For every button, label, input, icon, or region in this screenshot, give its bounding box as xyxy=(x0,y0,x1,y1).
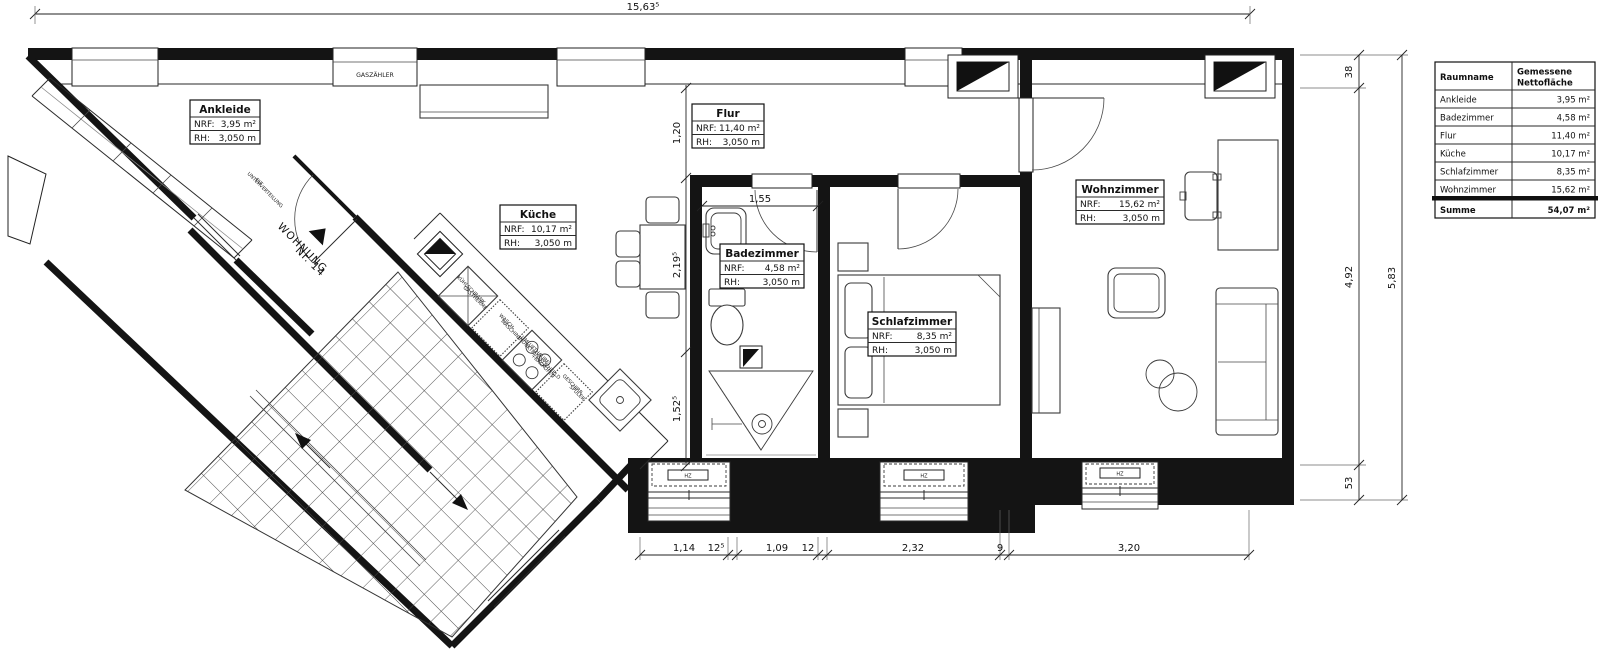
dim-155: 1,55 xyxy=(749,194,771,205)
radiator-label: HZ xyxy=(920,474,928,480)
shaft-icon-bath xyxy=(740,346,762,368)
dim-1525: 1,52⁵ xyxy=(672,396,683,422)
room-label-ankleide: Ankleide NRF:3,95 m² RH:3,050 m xyxy=(190,100,260,144)
dim-53: 53 xyxy=(1344,477,1355,490)
dim-114: 1,14 xyxy=(673,543,695,554)
svg-text:15,62 m²: 15,62 m² xyxy=(1551,186,1590,196)
table-row: Küche xyxy=(1440,150,1466,160)
table-row: Schlafzimmer xyxy=(1440,168,1499,178)
dim-38: 38 xyxy=(1344,66,1355,79)
svg-text:Flur: Flur xyxy=(716,108,740,120)
floorplan-drawing: GASZÄHLER xyxy=(0,0,1600,651)
dim-583: 5,83 xyxy=(1387,267,1398,289)
svg-text:8,35 m²: 8,35 m² xyxy=(1557,168,1590,178)
window-bay-2: HZ xyxy=(880,462,968,521)
svg-text:NRF:: NRF: xyxy=(724,264,745,274)
svg-text:RH:: RH: xyxy=(504,239,520,249)
dim-120: 1,20 xyxy=(672,122,683,144)
sofa xyxy=(1216,288,1278,435)
armchair xyxy=(1108,268,1165,318)
table-total-row: Summe xyxy=(1440,206,1476,216)
svg-text:15,62 m²: 15,62 m² xyxy=(1119,200,1160,210)
window-bay-3: HZ xyxy=(1082,462,1158,509)
area-table: Raumname Gemessene Nettofläche Ankleide … xyxy=(1432,62,1598,218)
dim-9: 9 xyxy=(997,543,1003,554)
svg-text:4,58 m²: 4,58 m² xyxy=(765,264,801,274)
coffee-table xyxy=(1159,373,1197,411)
svg-text:3,050 m: 3,050 m xyxy=(535,239,572,249)
svg-text:4,58 m²: 4,58 m² xyxy=(1557,114,1590,124)
svg-text:Schlafzimmer: Schlafzimmer xyxy=(872,316,953,328)
toilet xyxy=(709,289,745,345)
radiator-label: HZ xyxy=(1116,472,1124,478)
table-row: Badezimmer xyxy=(1440,114,1494,124)
svg-text:3,95 m²: 3,95 m² xyxy=(221,120,257,130)
table-total-divider xyxy=(1432,196,1598,201)
entrance-arrow-icon xyxy=(309,221,333,245)
svg-text:Ankleide: Ankleide xyxy=(199,104,251,116)
table-header-raumname: Raumname xyxy=(1440,73,1494,83)
bottom-windows: HZ HZ HZ xyxy=(648,462,1158,521)
svg-text:3,050 m: 3,050 m xyxy=(763,278,800,288)
dimension-right: 38 4,92 53 5,83 xyxy=(1300,50,1408,505)
dim-492: 4,92 xyxy=(1344,266,1355,288)
svg-text:3,050 m: 3,050 m xyxy=(1123,214,1160,224)
floorplan-page: GASZÄHLER xyxy=(0,0,1600,651)
svg-text:Nettofläche: Nettofläche xyxy=(1517,79,1573,89)
svg-text:Küche: Küche xyxy=(520,209,556,221)
svg-text:RH:: RH: xyxy=(194,134,210,144)
svg-text:NRF:: NRF: xyxy=(194,120,215,130)
table-row: Flur xyxy=(1440,132,1457,142)
shower xyxy=(706,371,816,455)
dim-320: 3,20 xyxy=(1118,543,1140,554)
kitchen-wall-counter xyxy=(420,85,548,118)
svg-text:NRF:: NRF: xyxy=(504,225,525,235)
nightstand xyxy=(838,243,868,271)
chimney-icon-2 xyxy=(1205,55,1275,98)
dim-109: 1,09 xyxy=(766,543,788,554)
dimension-top: 15,63⁵ xyxy=(30,2,1255,24)
chimney-icon-1 xyxy=(948,55,1018,98)
dim-125: 12⁵ xyxy=(708,543,725,554)
room-label-badezimmer: Badezimmer NRF:4,58 m² RH:3,050 m xyxy=(720,244,804,288)
svg-text:RH:: RH: xyxy=(696,138,712,148)
desk xyxy=(1218,140,1278,250)
svg-text:3,050 m: 3,050 m xyxy=(723,138,760,148)
window-bay-1: HZ xyxy=(648,462,730,521)
svg-text:RH:: RH: xyxy=(1080,214,1096,224)
svg-text:3,95 m²: 3,95 m² xyxy=(1557,96,1590,106)
dim-top-label: 15,63⁵ xyxy=(627,2,660,13)
room-label-flur: Flur NRF:11,40 m² RH:3,050 m xyxy=(692,104,764,148)
desk-chair xyxy=(1180,172,1221,220)
kitchen-sink xyxy=(589,369,651,431)
table-row: Wohnzimmer xyxy=(1440,186,1496,196)
svg-text:NRF:: NRF: xyxy=(696,124,717,134)
radiator-label: HZ xyxy=(684,474,692,480)
room-label-kueche: Küche NRF:10,17 m² RH:3,050 m xyxy=(500,205,576,249)
sideboard xyxy=(1032,308,1060,413)
svg-text:11,40 m²: 11,40 m² xyxy=(1551,132,1590,142)
svg-text:Badezimmer: Badezimmer xyxy=(725,248,799,260)
svg-text:3,050 m: 3,050 m xyxy=(219,134,256,144)
svg-text:54,07 m²: 54,07 m² xyxy=(1548,206,1591,216)
svg-text:8,35 m²: 8,35 m² xyxy=(917,332,953,342)
svg-text:3,050 m: 3,050 m xyxy=(915,346,952,356)
table-header-gemessene: Gemessene xyxy=(1517,68,1572,78)
svg-text:11,40 m²: 11,40 m² xyxy=(719,124,760,134)
svg-text:Wohnzimmer: Wohnzimmer xyxy=(1081,184,1159,196)
coffee-table xyxy=(1146,360,1174,388)
diagonal-labels: WOHNUNG Nr. 14 ELT UNTERVERTEILUNG xyxy=(246,171,333,279)
dim-12: 12 xyxy=(802,543,815,554)
svg-text:RH:: RH: xyxy=(872,346,888,356)
table-row: Ankleide xyxy=(1440,96,1477,106)
svg-text:10,17 m²: 10,17 m² xyxy=(1551,150,1590,160)
svg-text:10,17 m²: 10,17 m² xyxy=(531,225,572,235)
room-label-schlafzimmer: Schlafzimmer NRF:8,35 m² RH:3,050 m xyxy=(868,312,956,356)
svg-text:RH:: RH: xyxy=(724,278,740,288)
svg-text:NRF:: NRF: xyxy=(872,332,893,342)
dim-2195: 2,19⁵ xyxy=(672,252,683,278)
gas-meter-box: GASZÄHLER xyxy=(333,48,417,86)
nightstand xyxy=(838,409,868,437)
chimney-icon-kitchen xyxy=(417,231,462,276)
dim-232: 2,32 xyxy=(902,543,924,554)
room-label-wohnzimmer: Wohnzimmer NRF:15,62 m² RH:3,050 m xyxy=(1076,180,1164,224)
gas-meter-label: GASZÄHLER xyxy=(356,70,394,79)
svg-text:NRF:: NRF: xyxy=(1080,200,1101,210)
svg-text:UNTERVERTEILUNG: UNTERVERTEILUNG xyxy=(246,171,284,209)
